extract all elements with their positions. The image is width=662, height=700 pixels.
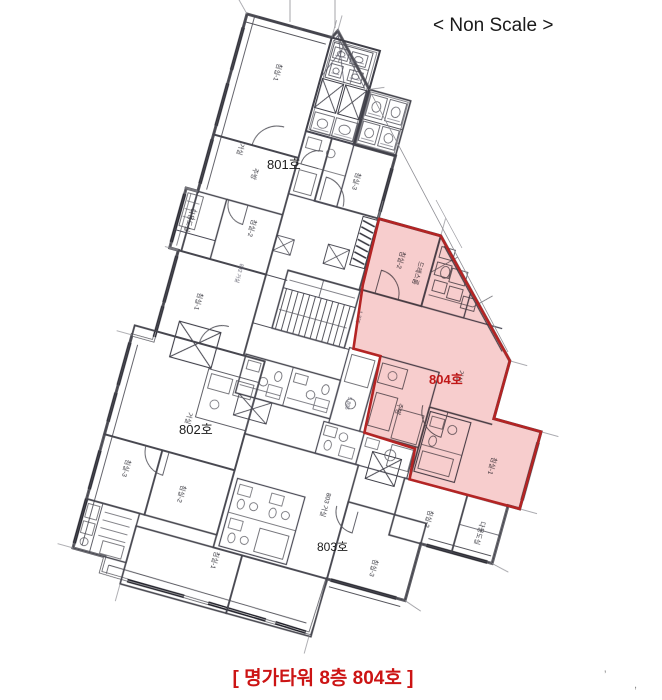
svg-text:,: , bbox=[634, 679, 637, 691]
svg-text:801호: 801호 bbox=[267, 157, 301, 172]
svg-text:< Non Scale >: < Non Scale > bbox=[433, 15, 553, 36]
svg-text:[ 명가타워 8층 804호 ]: [ 명가타워 8층 804호 ] bbox=[233, 667, 414, 689]
svg-text:’: ’ bbox=[604, 669, 606, 681]
svg-text:803호: 803호 bbox=[317, 540, 348, 554]
svg-text:804호: 804호 bbox=[429, 372, 463, 387]
svg-text:802호: 802호 bbox=[179, 422, 213, 437]
